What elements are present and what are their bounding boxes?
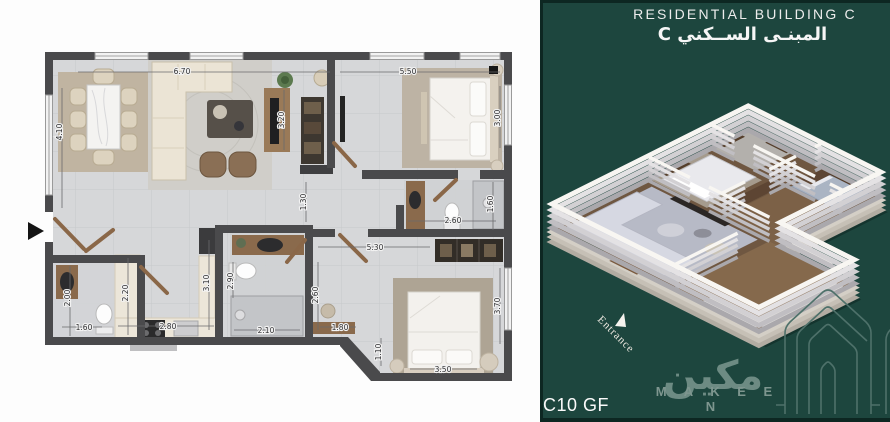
dimension-label: 1.80 [332, 323, 349, 332]
dimension-label: 1.30 [299, 193, 308, 210]
dimension-label: 2.60 [445, 216, 462, 225]
dimension-label: 3.10 [202, 274, 211, 291]
dimension-label: 3.50 [435, 365, 452, 374]
dimension-label: 3.00 [493, 109, 502, 126]
dimension-label: 1.60 [76, 323, 93, 332]
entrance-arrow-3d [615, 313, 626, 327]
floorplan-sheet: 6.705.504.103.203.001.302.601.605.302.90… [0, 0, 890, 422]
dimension-label: 4.10 [55, 123, 64, 140]
dimension-label: 2.60 [311, 286, 320, 303]
dimension-label: 2.80 [160, 322, 177, 331]
brand-panel: RESIDENTIAL BUILDING C المبنـى الســكني … [540, 0, 890, 422]
panel-top-edge [540, 0, 890, 3]
dimension-label: 3.20 [277, 111, 286, 128]
dimension-label: 3.70 [493, 297, 502, 314]
dimension-label: 2.90 [226, 272, 235, 289]
exterior-ledge [130, 345, 177, 351]
floorplan-2d: 6.705.504.103.203.001.302.601.605.302.90… [0, 0, 540, 422]
entrance-marker: Entrance [595, 313, 637, 355]
unit-label: C10 GF [543, 395, 609, 416]
dimension-label: 6.70 [174, 67, 191, 76]
floorplan-2d-area: 6.705.504.103.203.001.302.601.605.302.90… [0, 0, 540, 422]
dimension-label: 5.30 [367, 243, 384, 252]
dimension-label: 1.10 [374, 343, 383, 360]
brand-wordmark: M A K E E N [644, 384, 784, 414]
dimension-label: 1.60 [486, 195, 495, 212]
entrance-arrow-2d [28, 222, 44, 240]
dimension-label: 2.20 [121, 284, 130, 301]
dimension-label: 5.50 [400, 67, 417, 76]
dimension-label: 2.00 [63, 289, 72, 306]
panel-bottom-edge [540, 418, 890, 422]
entrance-label: Entrance [595, 314, 637, 356]
dimension-label: 2.10 [258, 326, 275, 335]
